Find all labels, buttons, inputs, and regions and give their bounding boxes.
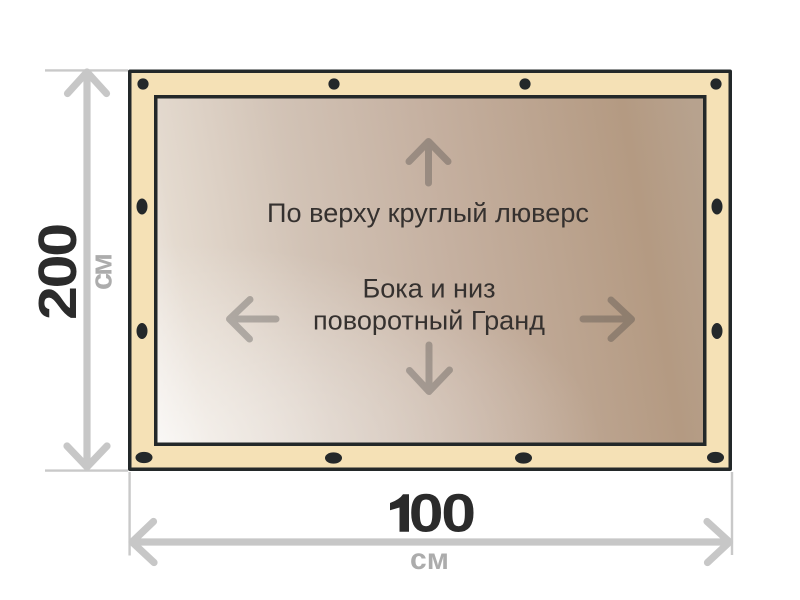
svg-text:По верху круглый люверс: По верху круглый люверс [267, 197, 589, 228]
svg-text:Бока и низ: Бока и низ [362, 272, 495, 303]
svg-text:см: см [84, 255, 119, 290]
svg-text:00: 00 [409, 484, 474, 544]
svg-text:см: см [410, 543, 449, 576]
svg-text:поворотный Гранд: поворотный Гранд [313, 304, 545, 335]
svg-text:200: 200 [28, 225, 88, 320]
